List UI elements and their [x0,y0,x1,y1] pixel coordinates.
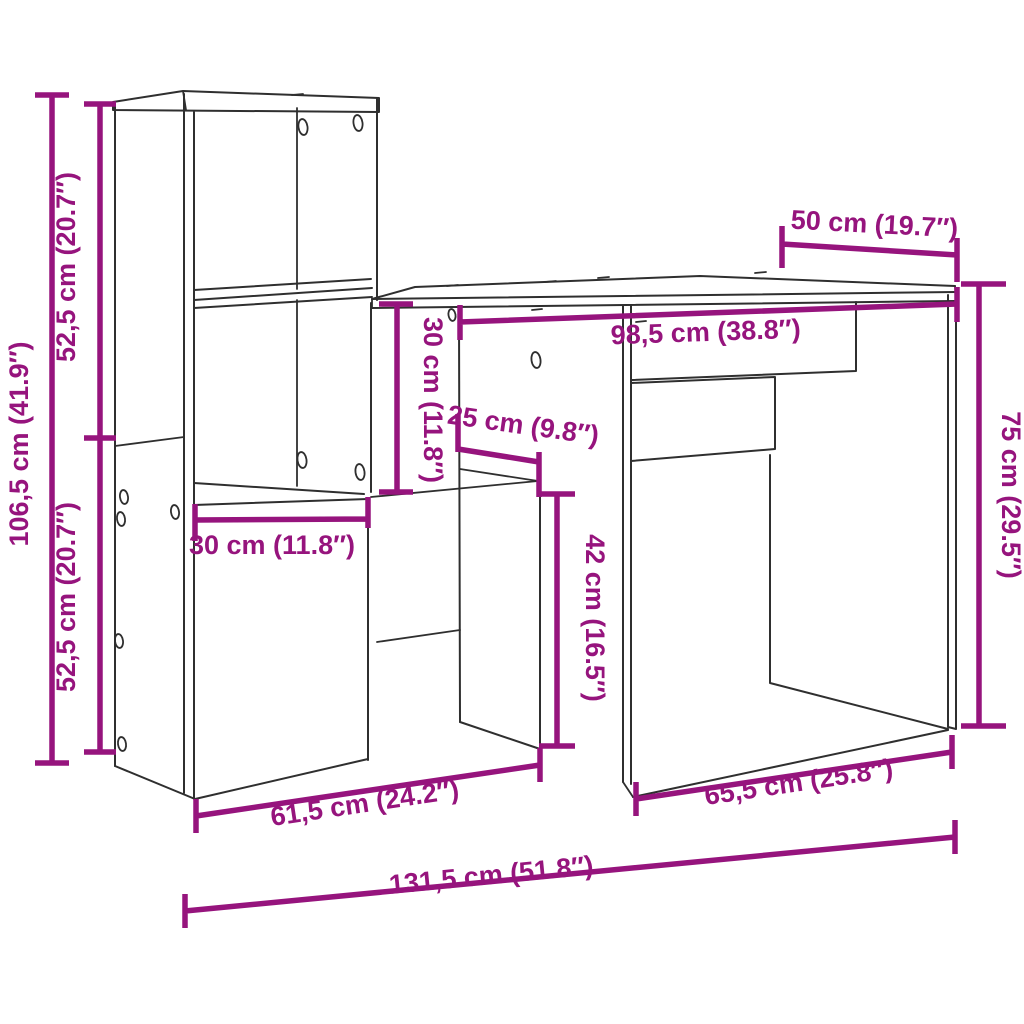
compartment-bottom-back-edge [194,483,364,494]
dim-compartment-width-label: 30 cm (11.8″) [189,530,355,560]
dim-desktop-width-label: 98,5 cm (38.8″) [610,314,801,351]
dim-total-width-label: 131,5 cm (51.8″) [388,850,595,900]
dim-upper-section-height-label: 52,5 cm (20.7″) [51,172,81,362]
diagram-canvas: 106,5 cm (41.9″) 52,5 cm (20.7″) 52,5 cm… [0,0,1024,1024]
dim-lower-section-height: 52,5 cm (20.7″) [51,438,116,752]
dim-upper-section-height: 52,5 cm (20.7″) [51,104,116,438]
right-compartment-inner-edge [770,455,948,729]
back-panel-bottom-edge [377,630,460,642]
dim-right-section-width: 65,5 cm (25.8″) [636,735,952,816]
dim-desk-height-label: 75 cm (29.5″) [996,411,1024,579]
dim-lower-section-height-label: 52,5 cm (20.7″) [51,502,81,692]
shelf-top-back-edge [194,279,371,290]
compartment-bottom-front-edge [194,499,368,505]
dim-desk-depth-label: 50 cm (19.7″) [790,205,959,244]
dim-compartment-height-label: 30 cm (11.8″) [418,317,448,483]
dim-total-width: 131,5 cm (51.8″) [185,820,955,928]
tower-top-board [113,91,379,112]
dim-total-height-label: 106,5 cm (41.9″) [4,341,34,546]
dim-compartment-width: 30 cm (11.8″) [189,497,368,560]
dim-compartment-height: 30 cm (11.8″) [379,304,448,492]
dim-left-section-width-label: 61,5 cm (24.2″) [268,774,460,832]
furniture-dimension-diagram: 106,5 cm (41.9″) 52,5 cm (20.7″) 52,5 cm… [0,0,1024,1024]
dim-compartment-depth-label: 25 cm (9.8″) [446,400,601,451]
dim-desk-depth: 50 cm (19.7″) [782,205,959,282]
dim-knee-clearance: 42 cm (16.5″) [539,494,610,746]
dim-knee-clearance-label: 42 cm (16.5″) [580,534,610,702]
support-panel-bottom-edge [460,722,540,749]
return-depth-edge [460,469,538,481]
tower-box-joint-line [115,437,184,446]
support-panel-front-edge [459,312,460,722]
dim-desk-height: 75 cm (29.5″) [961,284,1024,726]
drawer-front [631,377,775,461]
furniture-outline [113,91,956,799]
desktop-front-top-edge [372,292,956,299]
right-side-panel [948,295,956,729]
